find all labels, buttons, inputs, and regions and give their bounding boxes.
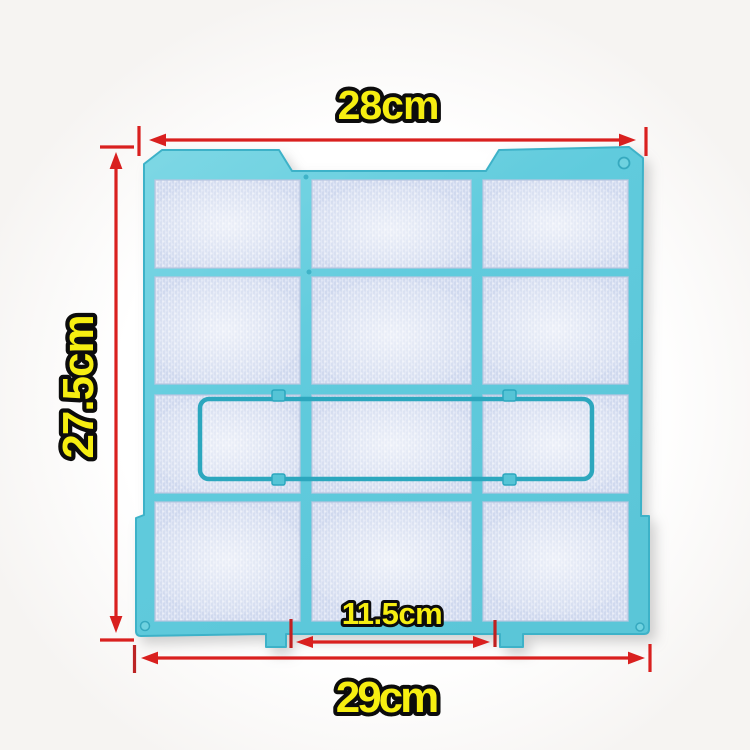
svg-text:27.5cm: 27.5cm [54, 315, 103, 458]
svg-text:29cm: 29cm [336, 673, 437, 722]
svg-text:28cm: 28cm [338, 82, 439, 128]
svg-text:11.5cm: 11.5cm [342, 596, 442, 631]
